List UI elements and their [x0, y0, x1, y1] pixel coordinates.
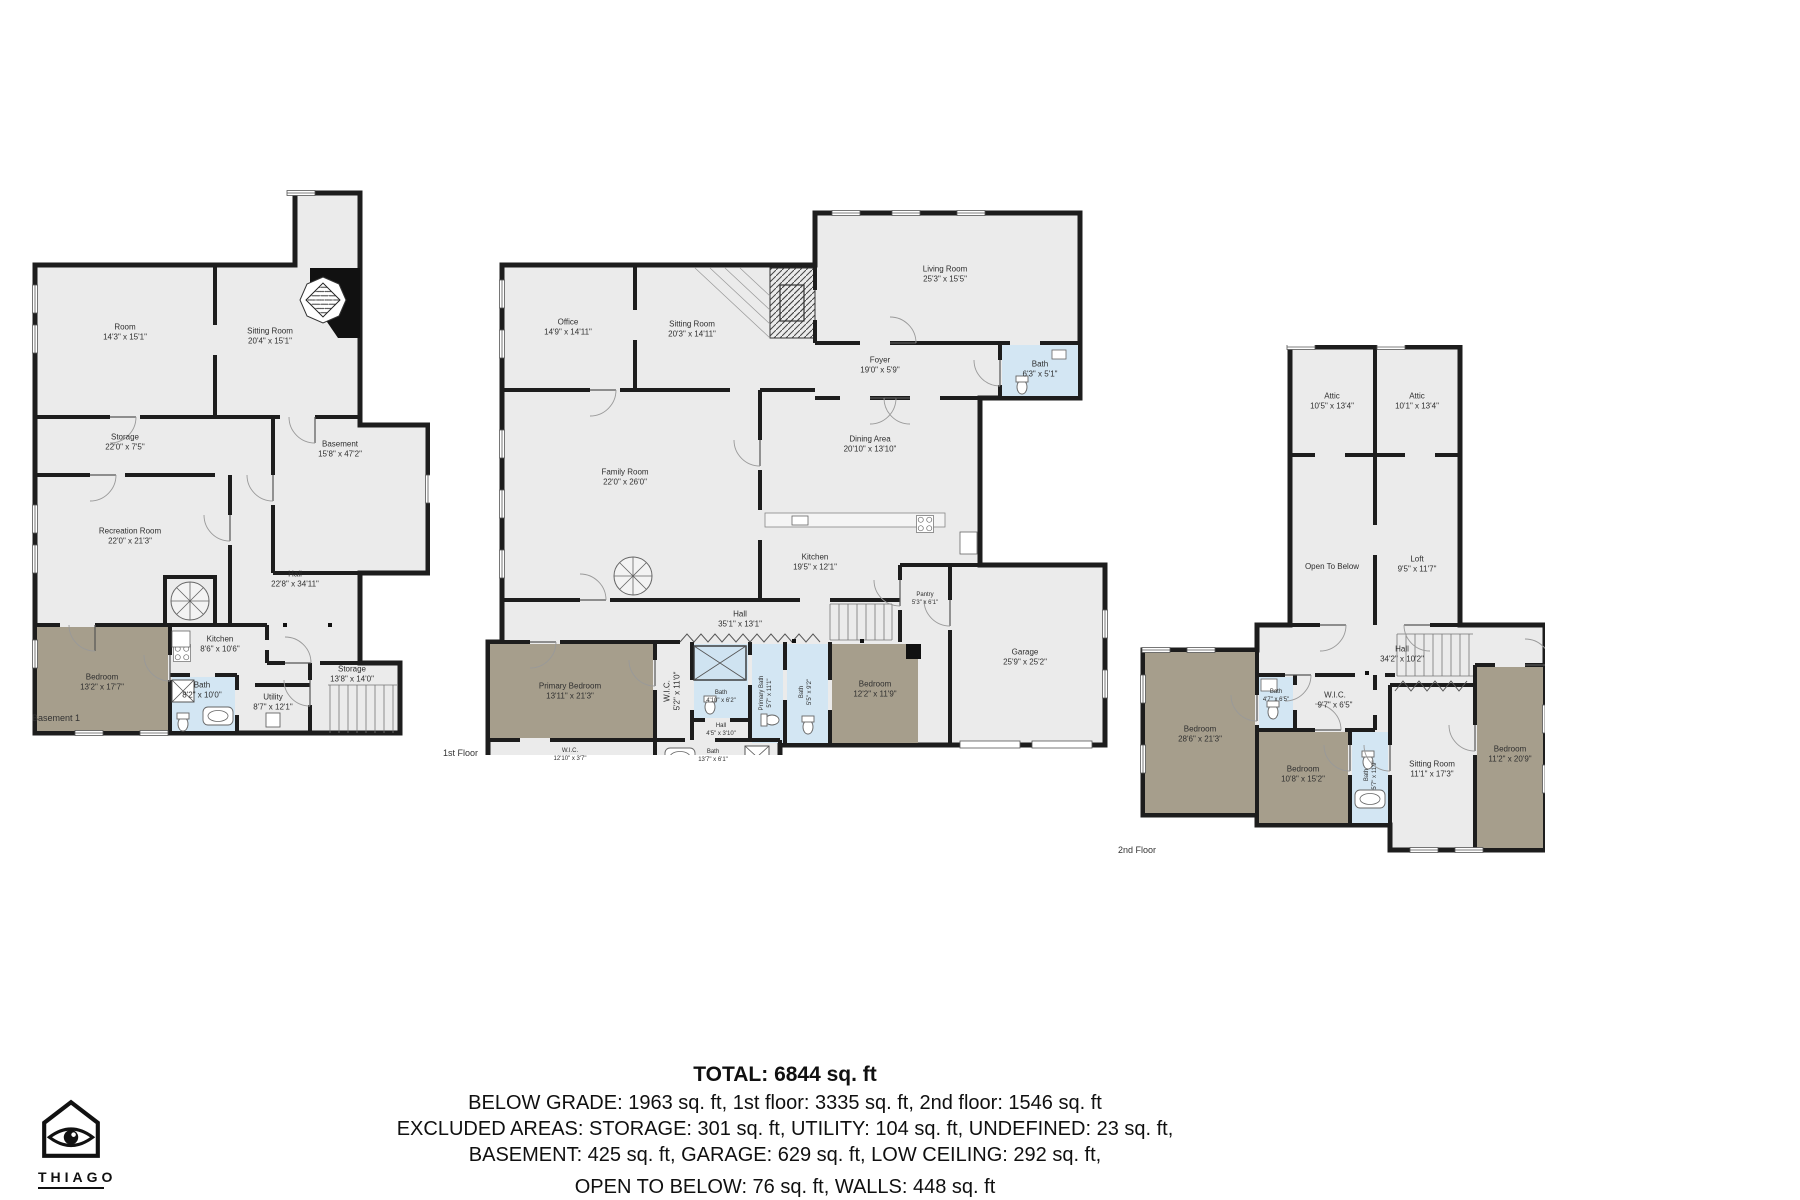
room-label: Bath5'5" x 9'2" [799, 679, 815, 705]
summary-line: BASEMENT: 425 sq. ft, GARAGE: 629 sq. ft… [335, 1144, 1235, 1167]
first-floor-plan-drawing [440, 180, 1110, 755]
room-label: Bedroom10'8" x 15'2" [1281, 765, 1325, 786]
room-label: Foyer19'0" x 5'9" [860, 356, 899, 377]
room-label: Storage22'0" x 7'5" [105, 433, 144, 454]
room-label: Hall34'2" x 10'2" [1380, 645, 1424, 666]
basement-plan: Room14'3" x 15'1" Sitting Room20'4" x 15… [30, 185, 430, 745]
room-label: Storage13'8" x 14'0" [330, 665, 374, 686]
room-label: Basement15'8" x 47'2" [318, 440, 362, 461]
room-label: Room14'3" x 15'1" [103, 323, 147, 344]
room-label: Living Room25'3" x 15'5" [923, 265, 967, 286]
room-label: Hall35'1" x 13'1" [718, 610, 762, 631]
second-floor-plan-drawing [1115, 345, 1545, 860]
room-label: Bedroom12'2" x 11'9" [853, 680, 896, 701]
room-label: Utility8'7" x 12'1" [253, 693, 292, 714]
room-label: W.I.C.12'10" x 3'7" [554, 748, 587, 764]
room-label: Office14'9" x 14'11" [544, 318, 592, 339]
summary-total: TOTAL: 6844 sq. ft [335, 1063, 1235, 1087]
summary-line: EXCLUDED AREAS: STORAGE: 301 sq. ft, UTI… [335, 1118, 1235, 1141]
logo-rule [38, 1187, 104, 1189]
summary-line: BELOW GRADE: 1963 sq. ft, 1st floor: 333… [335, 1092, 1235, 1115]
first-floor-plan: Office14'9" x 14'11" Sitting Room20'3" x… [440, 180, 1110, 755]
room-label: Pantry5'3" x 6'1" [912, 592, 938, 608]
summary-line: OPEN TO BELOW: 76 sq. ft, WALLS: 448 sq.… [335, 1176, 1235, 1199]
room-label: Sitting Room20'4" x 15'1" [247, 327, 293, 348]
room-label: Sitting Room20'3" x 14'11" [668, 320, 716, 341]
room-label: Sitting Room11'1" x 17'3" [1409, 760, 1455, 781]
floor-tag: 1st Floor [443, 748, 478, 758]
room-label: W.I.C.9'7" x 6'5" [1318, 691, 1353, 712]
room-label: Bedroom13'2" x 17'7" [80, 673, 124, 694]
room-label: Kitchen8'6" x 10'6" [200, 635, 239, 656]
room-label: Primary Bath5'7" x 11'1" [759, 676, 775, 711]
room-label: Bath8'2" x 10'0" [182, 681, 221, 702]
room-label: Hall22'8" x 34'11" [271, 570, 319, 591]
room-label: Bath6'3" x 5'1" [1023, 360, 1058, 381]
room-label: W.I.C.5'2" x 11'0" [663, 672, 684, 711]
room-label: Open To Below [1305, 562, 1359, 572]
room-label: Bath5'7" x 11'9" [1364, 760, 1380, 789]
floor-tag: 2n‌d Floor [1118, 845, 1156, 855]
room-label: Bedroom28'6" x 21'3" [1178, 725, 1222, 746]
room-label: Bath4'7" x 6'5" [1263, 689, 1289, 705]
room-label: Hall4'5" x 3'10" [706, 723, 736, 739]
room-label: Family Room22'0" x 26'0" [601, 468, 648, 489]
thiago-logo: THIAGO [38, 1098, 148, 1189]
room-label: Attic10'1" x 13'4" [1395, 392, 1439, 413]
room-label: Bath13'7" x 6'1" [698, 749, 728, 765]
room-label: Primary Bedroom13'11" x 21'3" [539, 682, 601, 703]
second-floor-plan: Attic10'5" x 13'4" Attic10'1" x 13'4" Op… [1115, 345, 1545, 860]
brand-name: THIAGO [38, 1169, 104, 1185]
room-label: Dining Area20'10" x 13'10" [844, 435, 897, 456]
room-label: Loft9'5" x 11'7" [1398, 555, 1437, 576]
room-label: Bath4'10" x 6'2" [706, 690, 736, 706]
room-label: Garage25'9" x 25'2" [1003, 648, 1047, 669]
room-label: Bedroom11'2" x 20'9" [1488, 745, 1531, 766]
room-label: Attic10'5" x 13'4" [1310, 392, 1354, 413]
basement-plan-drawing [30, 185, 430, 745]
floorplan-page: { "colors": { "floor": "#ebebeb", "wall"… [0, 0, 1800, 1200]
logo-house-eye-icon [38, 1098, 104, 1160]
room-label: Kitchen19'5" x 12'1" [793, 553, 837, 574]
floor-tag: Basement 1 [32, 713, 80, 723]
room-label: Recreation Room22'0" x 21'3" [99, 527, 161, 548]
